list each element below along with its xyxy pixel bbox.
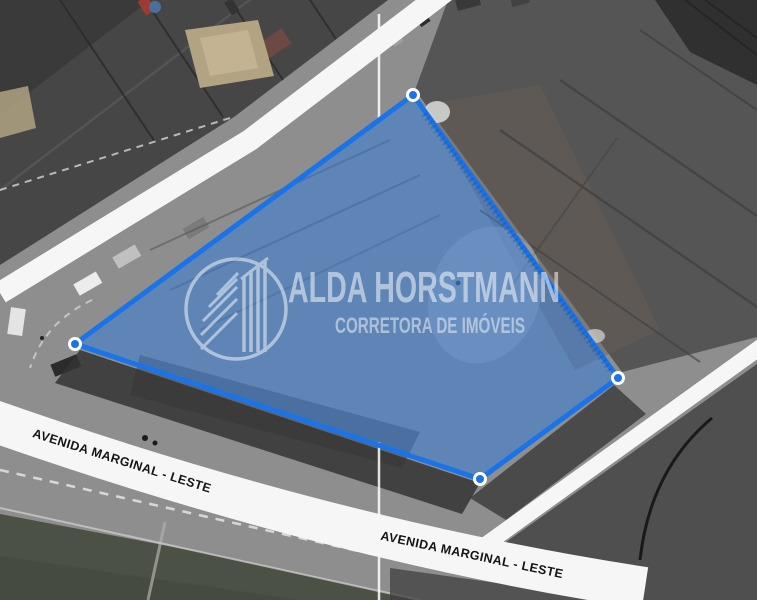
polygon-vertex-handle [408,90,419,101]
motorbike-dot [153,441,158,446]
watermark-title: ALDA HORSTMANN [288,263,560,312]
polygon-vertex-handle [613,373,624,384]
pedestrian-dot [40,336,44,340]
polygon-vertex-handle [475,474,486,485]
motorbike-dot [142,435,148,441]
polygon-vertex-handle [70,339,81,350]
property-listing-map: ALDA HORSTMANN CORRETORA DE IMÓVEIS AVEN… [0,0,757,600]
dirt-lot-light [200,30,258,76]
aerial-photo: ALDA HORSTMANN CORRETORA DE IMÓVEIS [0,0,757,600]
blue-canopy [149,1,161,13]
watermark-subtitle: CORRETORA DE IMÓVEIS [335,313,525,338]
